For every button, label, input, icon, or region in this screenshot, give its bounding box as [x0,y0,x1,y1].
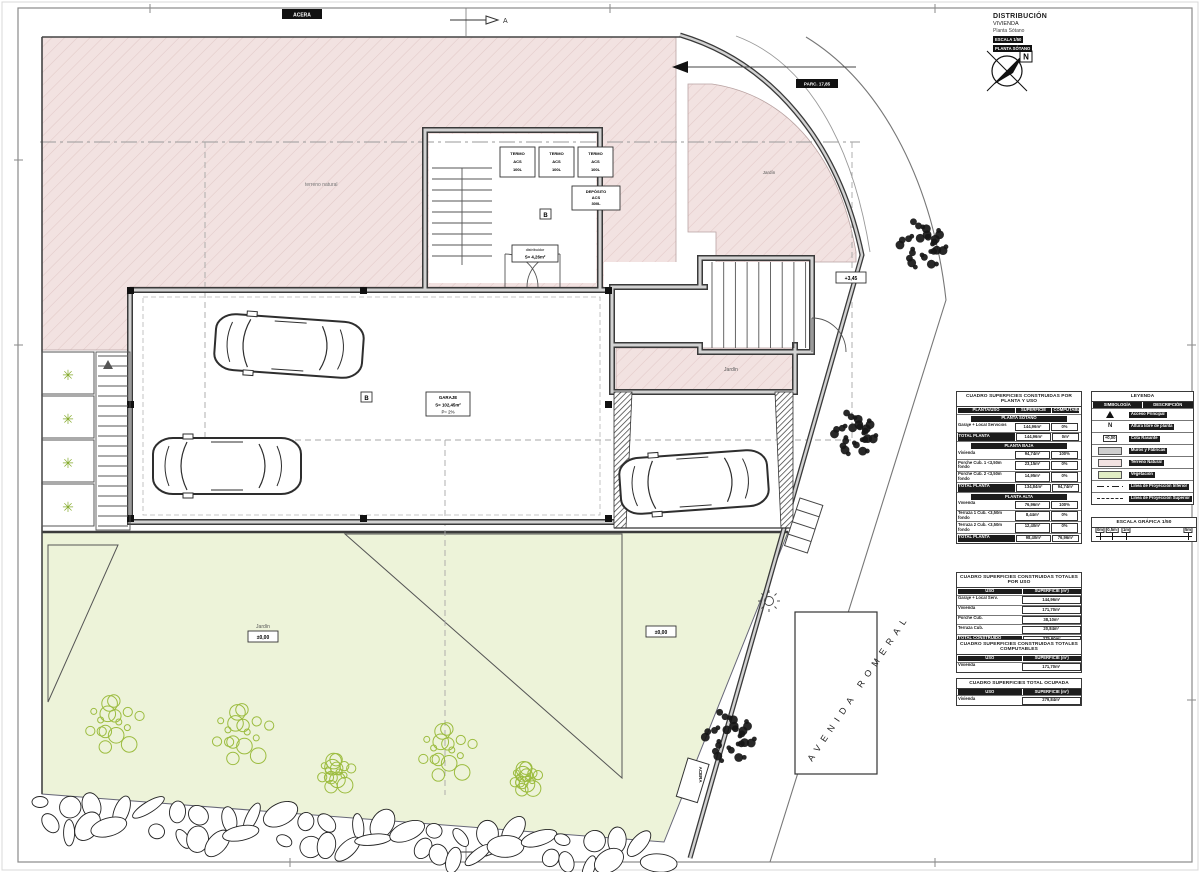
svg-text:B: B [543,213,548,219]
drawing-title: DISTRIBUCIÓN [993,13,1113,20]
table-row: Vivienda171,70m² [957,606,1081,616]
planter-plants: ✳✳✳✳ [62,367,74,515]
distribuidor-label: distribuidor S= 4,26m² [512,245,558,262]
table-row: Vivienda279,84m² [957,696,1081,705]
garden-staircase [96,352,130,530]
table-header-cell: SUPERFICIE (m²) [1023,689,1081,695]
table-title: CUADRO SUPERFICIES TOTAL OCUPADA [957,679,1081,689]
jardin-top-right-label: Jardín [763,170,776,175]
legend-row: Acceso Principal [1092,409,1193,421]
sidewalk-label-top: ACERA [282,9,322,19]
table-cell: 100% [1051,451,1077,459]
svg-text:distribuidor: distribuidor [526,248,545,252]
legend-description: Terreno Natural [1128,457,1193,468]
table-title: CUADRO SUPERFICIES CONSTRUIDAS TOTALES P… [957,573,1081,588]
legend-row: Línea de Proyección Inferior [1092,481,1193,493]
table-header-cell: USO [958,656,1022,662]
legend-description: Vegetación [1128,469,1193,480]
table-cell: 94,74m² [1015,451,1051,459]
table-cell: 144,96m² [1022,596,1081,604]
legend-row: Línea de Proyección Superior [1092,493,1193,504]
table-row: Garaje + Local Serv.144,96m² [957,596,1081,606]
scale-tick-label: 1m [1121,527,1130,534]
table-title: CUADRO SUPERFICIES CONSTRUIDAS TOTALES C… [957,640,1081,655]
stone [487,835,524,857]
table-surfaces-by-use: CUADRO SUPERFICIES CONSTRUIDAS TOTALES P… [956,572,1082,645]
table-cell: Terraza 1 Cub. <3,50m fondo [957,511,1014,522]
stone [147,822,167,841]
scale-tick-label: 5m [1183,527,1192,534]
stone [450,826,472,849]
table-cell: Porche Cub. 1 <3,50m fondo [957,460,1014,471]
drawing-sheet: PARC. 17,85 A A ACERA ACERA AVENIDA ROME… [0,0,1200,872]
svg-text:GARAJE: GARAJE [439,395,457,400]
table-cell: Vivienda [957,501,1014,510]
svg-text:100L: 100L [591,167,601,172]
svg-text:A: A [503,18,508,25]
swatch-green-icon [1092,469,1128,480]
table-cell: 144,96m² [1015,423,1051,431]
table-cell: 12,40m² [1015,523,1051,533]
graphic-scale-panel: ESCALA GRÁFICA 1/50 0m0,5m1m5m [1091,517,1197,542]
stone [32,797,48,808]
drawing-floor-name: Planta Sótano [993,28,1113,34]
table-header-cell: PLANTA/USO [958,408,1015,414]
legend-row: Terreno Natural [1092,457,1193,469]
svg-text:100L: 100L [552,167,562,172]
svg-text:DEPÓSITO: DEPÓSITO [586,189,607,194]
svg-text:ACS: ACS [552,159,561,164]
table-surfaces-by-floor: CUADRO SUPERFICIES CONSTRUIDAS POR PLANT… [956,391,1082,544]
table-occupied-surface: CUADRO SUPERFICIES TOTAL OCUPADAUSOSUPER… [956,678,1082,706]
equipment-box: TERMOACS100L [539,147,574,177]
plant-star-icon: ✳ [62,367,74,383]
table-cell: Vivienda [957,450,1014,459]
level-box: ±0,00 [646,626,676,637]
legend-description: Altura libre de planta [1128,421,1193,432]
table-cell: TOTAL PLANTA [958,535,1015,543]
table-header-cell: SUPERFICIE (m²) [1023,656,1081,662]
stone [315,831,338,860]
svg-text:ACS: ACS [592,195,601,200]
table-cell: 38,10m² [1022,616,1081,624]
table-header-cell: SUPERFICIE (m²) [1023,589,1081,595]
svg-text:TERMO: TERMO [549,151,563,156]
legend-row: +0,00Cota Rasante [1092,433,1193,445]
table-row: TOTAL PLANTA144,96m²0m² [957,433,1081,443]
table-cell: TOTAL PLANTA [958,484,1015,492]
stone [64,820,75,846]
table-cell: Porche Cub. [957,616,1021,625]
table-cell: 76,96m² [1015,501,1051,509]
legend-row: NAltura libre de planta [1092,421,1193,433]
svg-text:S= 4,26m²: S= 4,26m² [525,255,546,260]
terreno-natural-label: terreno natural [305,182,338,188]
cota-icon: +0,00 [1092,433,1128,444]
garage-label: GARAJE S= 102,45m² P= 2% [426,392,470,416]
legend-description: Acceso Principal [1128,409,1193,420]
legend-description: Línea de Proyección Superior [1128,493,1193,504]
equipment-box: TERMOACS100L [578,147,613,177]
deposit-label: DEPÓSITO ACS 300L [572,186,620,210]
svg-text:B: B [364,396,369,402]
table-cell: 23,15m² [1015,461,1051,471]
table-row: Vivienda76,96m²100% [957,501,1081,511]
scale-tick-label: 0,5m [1106,527,1119,534]
svg-text:300L: 300L [591,201,601,206]
table-row: Terraza Cub.20,84m² [957,625,1081,635]
table-cell: TOTAL PLANTA [958,433,1015,441]
table-row: TOTAL PLANTA98,40m²76,96m² [957,534,1081,543]
table-cell: 76,96m² [1052,535,1078,543]
table-row: Porche Cub.38,10m² [957,616,1081,626]
parcel-label: PARC. 17,85 [796,79,838,88]
stone [640,853,678,872]
scale-tick [1100,533,1101,540]
drawing-subtitle: VIVIENDA [993,21,1113,27]
svg-text:N: N [1023,53,1029,62]
table-cell: 14,95m² [1015,472,1051,482]
table-title: CUADRO SUPERFICIES CONSTRUIDAS POR PLANT… [957,392,1081,407]
table-cell: 0% [1051,523,1077,533]
street-name-box: AVENIDA ROMERAL [795,612,912,774]
legend-header-cell: DESCRIPCIÓN [1143,402,1193,408]
table-row: PLANTA SÓTANO [971,416,1067,422]
svg-text:ACERA: ACERA [698,767,703,784]
table-cell: Terraza 2 Cub. <3,50m fondo [957,522,1014,533]
svg-text:ACS: ACS [513,159,522,164]
dash-icon [1092,493,1128,504]
table-computable-surfaces: CUADRO SUPERFICIES CONSTRUIDAS TOTALES C… [956,639,1082,673]
scale-bar-label: ESCALA 1/50 [993,36,1023,43]
plant-star-icon: ✳ [62,411,74,427]
level-box: +3,45 [836,272,866,283]
scale-tick [1188,533,1189,540]
table-row: PLANTA ALTA [971,494,1067,500]
table-row: Porche Cub. 1 <3,50m fondo23,15m²0% [957,460,1081,472]
svg-text:P= 2%: P= 2% [441,410,454,415]
table-cell: Vivienda [957,663,1021,672]
table-cell: Porche Cub. 2 <3,50m fondo [957,472,1014,483]
level-box: ±0,00 [248,631,278,642]
table-cell: 0% [1051,472,1077,482]
equipment-labels: TERMOACS100LTERMOACS100LTERMOACS100L [500,147,613,177]
jardin-strip-label: Jardín [724,367,738,373]
jardin-left-label: Jardín [256,624,270,630]
table-cell: 20,84m² [1022,626,1081,634]
table-cell: 134,84m² [1016,484,1052,492]
table-cell: 94,74m² [1052,484,1078,492]
table-row: Garaje + Local Servicios144,96m²0% [957,423,1081,433]
table-header-row: USOSUPERFICIE (m²) [957,655,1081,663]
stone [556,850,576,872]
svg-text:100L: 100L [513,167,523,172]
stair-hall-floor [604,262,810,345]
table-header-row: USOSUPERFICIE (m²) [957,588,1081,596]
legend-description: Muros y Fábricas [1128,445,1193,456]
table-row: Terraza 2 Cub. <3,50m fondo12,40m²0% [957,522,1081,534]
table-cell: 0% [1051,423,1077,431]
table-cell: 171,70m² [1022,606,1081,614]
table-row: Vivienda171,70m² [957,663,1081,672]
plant-star-icon: ✳ [62,499,74,515]
tree [830,410,878,457]
svg-text:S= 102,45m²: S= 102,45m² [435,403,461,408]
table-cell: 98,40m² [1016,535,1052,543]
table-cell: Vivienda [957,696,1021,705]
graphic-scale-bar: 0m0,5m1m5m [1096,530,1192,540]
table-header-row: USOSUPERFICIE (m²) [957,689,1081,697]
table-cell: 171,70m² [1022,663,1081,671]
legend-header-cell: SIMBOLOGÍA [1093,402,1143,408]
title-block: DISTRIBUCIÓN VIVIENDA Planta Sótano ESCA… [993,13,1113,52]
table-row: TOTAL PLANTA134,84m²94,74m² [957,483,1081,493]
legend-description: Cota Rasante [1128,433,1193,444]
stone [275,832,294,849]
svg-text:TERMO: TERMO [510,151,524,156]
table-row: PLANTA BAJA [971,443,1067,449]
scale-tick [1126,533,1127,540]
swatch-gray-icon [1092,445,1128,456]
table-cell: 100% [1051,501,1077,509]
svg-text:±0,00: ±0,00 [655,630,668,636]
svg-text:+3,45: +3,45 [845,276,858,282]
table-cell: Terraza Cub. [957,625,1021,634]
letter-icon: N [1092,421,1128,432]
swatch-pink-icon [1092,457,1128,468]
stone [38,810,62,836]
section-marker-top: A [450,8,508,36]
table-cell: 144,96m² [1016,433,1052,441]
table-cell: 0% [1051,461,1077,471]
dashdot-icon [1092,481,1128,492]
legend-description: Línea de Proyección Inferior [1128,481,1193,492]
legend-row: Vegetación [1092,469,1193,481]
table-cell: Garaje + Local Serv. [957,596,1021,605]
scale-tick [1112,533,1113,540]
legend-row: Muros y Fábricas [1092,445,1193,457]
table-row: Terraza 1 Cub. <3,50m fondo8,44m²0% [957,511,1081,523]
svg-text:ACS: ACS [591,159,600,164]
svg-text:TERMO: TERMO [588,151,602,156]
svg-text:ACERA: ACERA [293,13,311,19]
plan-bar-label: PLANTA SÓTANO [993,45,1032,52]
plant-star-icon: ✳ [62,455,74,471]
table-cell: 8,44m² [1015,511,1051,521]
table-header-cell: USO [958,589,1022,595]
table-cell: 279,84m² [1022,697,1081,705]
marker-b: B [540,209,551,219]
table-header-cell: USO [958,689,1022,695]
stair-direction-arrow [103,360,113,369]
table-header-cell: COMPUTABLE [1052,408,1078,414]
svg-text:±0,00: ±0,00 [257,635,270,641]
table-cell: Vivienda [957,606,1021,615]
svg-text:PARC. 17,85: PARC. 17,85 [804,82,831,87]
table-header-cell: SUPERFICIE [1016,408,1052,414]
marker-b: B [361,392,372,402]
table-cell: Garaje + Local Servicios [957,423,1014,432]
car [153,434,301,498]
access-arrow [672,61,856,73]
legend-header-row: SIMBOLOGÍADESCRIPCIÓN [1092,402,1193,410]
equipment-box: TERMOACS100L [500,147,535,177]
table-cell: 0% [1051,511,1077,521]
scale-tick-label: 0m [1095,527,1104,534]
triangle-icon [1092,409,1128,420]
table-row: Porche Cub. 2 <3,50m fondo14,95m²0% [957,472,1081,484]
table-row: Vivienda94,74m²100% [957,450,1081,460]
legend-panel: LEYENDASIMBOLOGÍADESCRIPCIÓNAcceso Princ… [1091,391,1194,505]
table-cell: 0m² [1052,433,1078,441]
legend-title: LEYENDA [1092,392,1193,402]
table-header-row: PLANTA/USOSUPERFICIECOMPUTABLE [957,407,1081,415]
north-arrow: N [987,51,1032,91]
